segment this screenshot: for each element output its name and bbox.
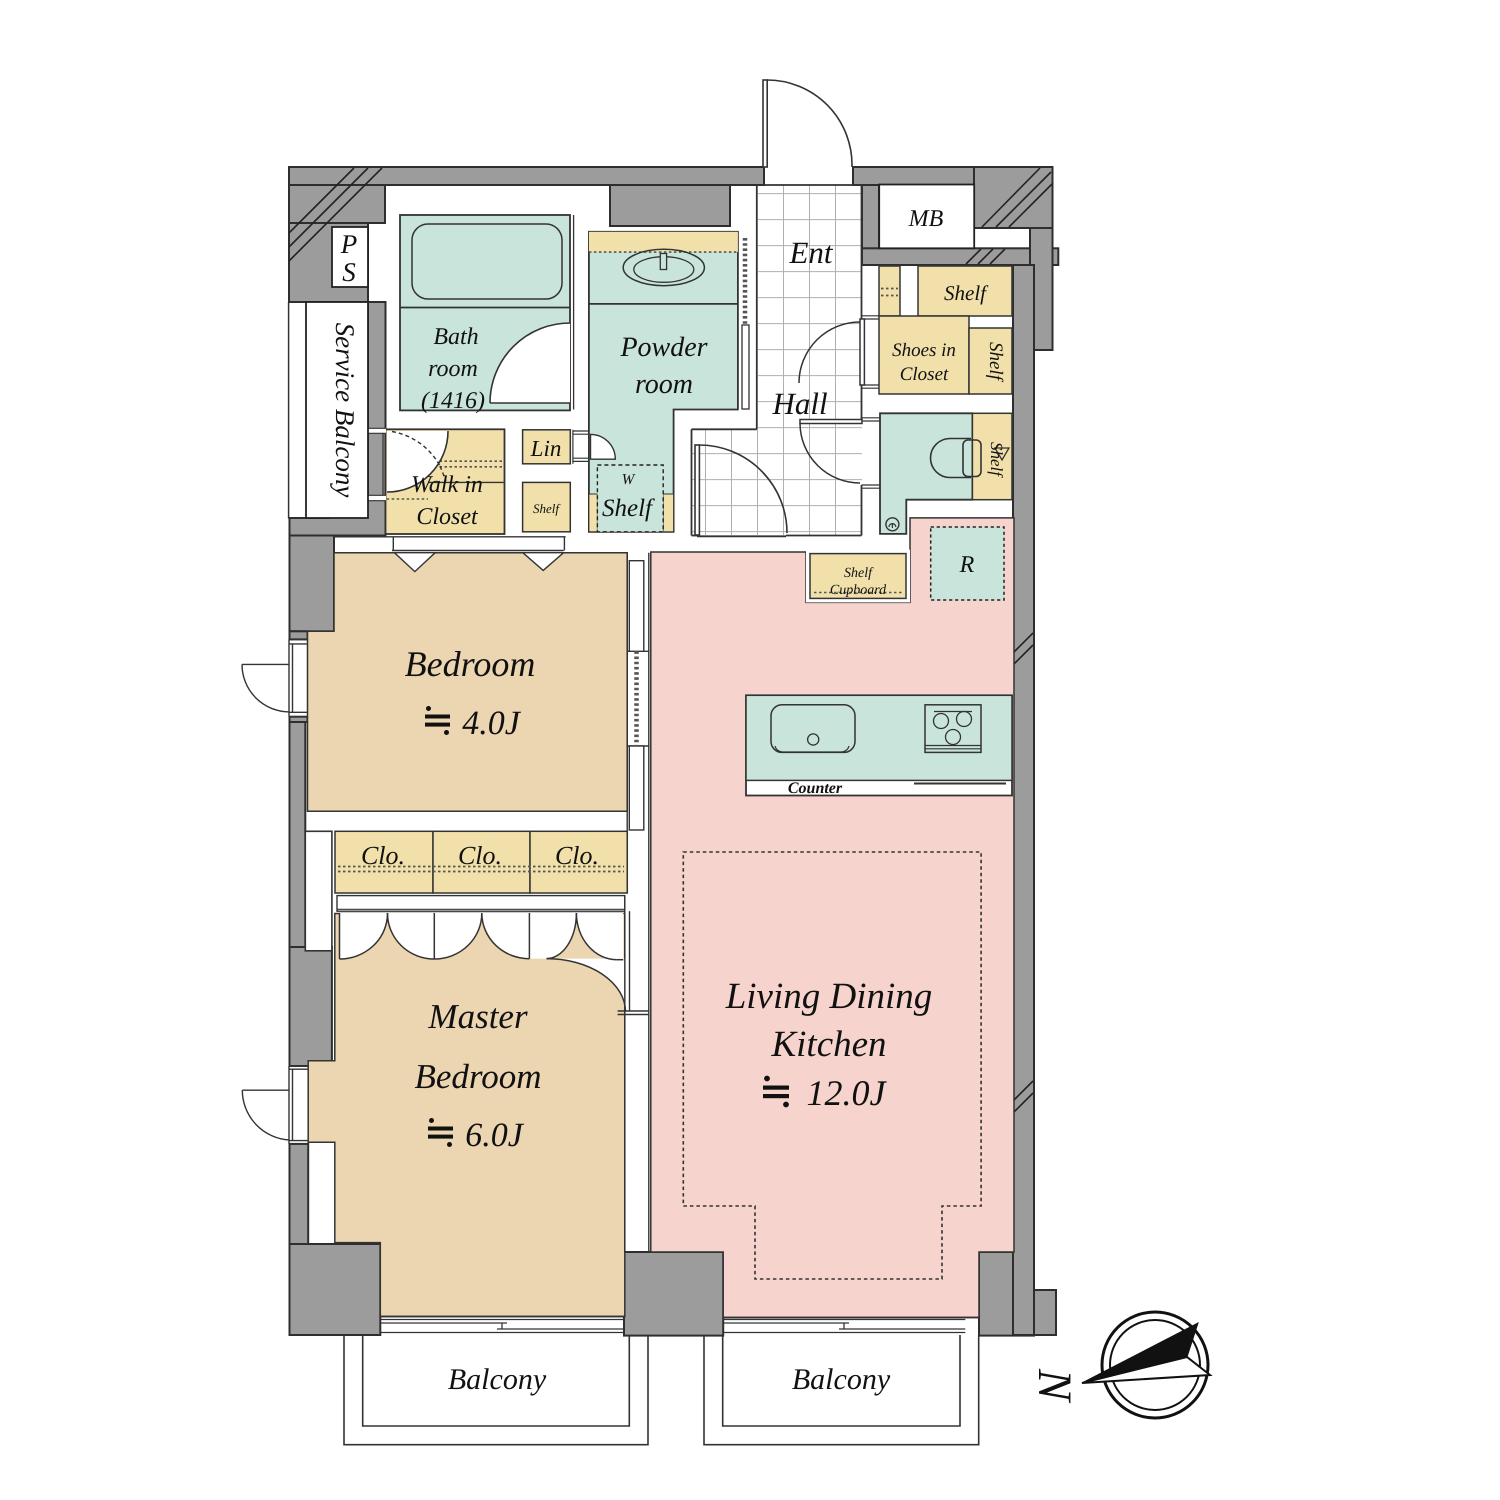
- svg-text:Closet: Closet: [900, 364, 949, 385]
- svg-text:(1416): (1416): [421, 388, 485, 414]
- svg-text:Cupboard: Cupboard: [830, 583, 887, 598]
- svg-text:Ent: Ent: [788, 235, 833, 270]
- svg-text:Balcony: Balcony: [792, 1363, 891, 1396]
- svg-text:room: room: [428, 356, 478, 382]
- svg-text:Shelf: Shelf: [944, 281, 989, 305]
- svg-text:Bedroom: Bedroom: [405, 644, 536, 684]
- svg-text:Powder: Powder: [619, 332, 707, 363]
- svg-text:Clo.: Clo.: [458, 841, 502, 870]
- svg-text:Shelf: Shelf: [985, 342, 1006, 383]
- svg-text:4.0J: 4.0J: [462, 705, 522, 742]
- svg-text:Counter: Counter: [788, 780, 843, 797]
- svg-text:Living Dining: Living Dining: [725, 976, 933, 1017]
- svg-text:Kitchen: Kitchen: [770, 1024, 886, 1065]
- svg-text:Lin: Lin: [530, 436, 562, 461]
- svg-text:Hall: Hall: [771, 386, 827, 421]
- svg-text:Shelf: Shelf: [987, 442, 1006, 478]
- svg-text:Shelf: Shelf: [844, 566, 874, 581]
- svg-text:P: P: [340, 229, 358, 259]
- svg-text:Shoes in: Shoes in: [892, 340, 956, 361]
- svg-text:R: R: [959, 552, 975, 578]
- svg-text:Bath: Bath: [433, 324, 478, 350]
- svg-text:Shelf: Shelf: [602, 495, 655, 522]
- svg-text:MB: MB: [908, 206, 944, 232]
- svg-text:S: S: [342, 257, 356, 287]
- svg-text:Service Balcony: Service Balcony: [330, 323, 360, 498]
- svg-text:Shelf: Shelf: [533, 501, 561, 516]
- svg-text:6.0J: 6.0J: [465, 1117, 525, 1154]
- svg-text:Clo.: Clo.: [555, 841, 599, 870]
- svg-text:Closet: Closet: [416, 504, 479, 530]
- svg-text:Walk in: Walk in: [411, 472, 483, 498]
- svg-text:Bedroom: Bedroom: [414, 1057, 541, 1096]
- svg-text:12.0J: 12.0J: [807, 1073, 888, 1113]
- svg-text:Master: Master: [427, 997, 528, 1036]
- svg-text:W: W: [622, 472, 636, 488]
- svg-text:room: room: [635, 369, 693, 400]
- svg-text:Balcony: Balcony: [448, 1363, 547, 1396]
- svg-text:Clo.: Clo.: [361, 841, 405, 870]
- svg-text:N: N: [1028, 1368, 1081, 1404]
